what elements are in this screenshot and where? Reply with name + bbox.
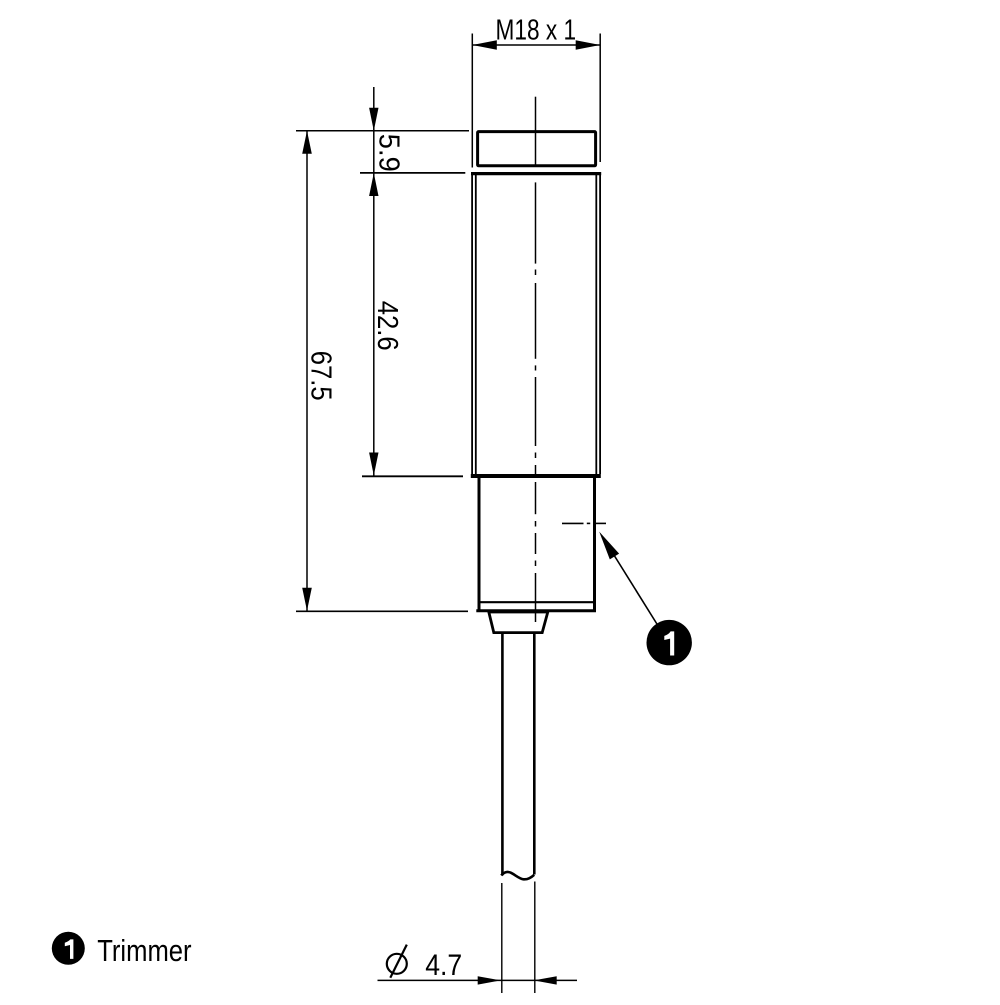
svg-text:4.7: 4.7	[425, 949, 462, 982]
svg-text:5.9: 5.9	[373, 134, 405, 172]
svg-text:M18 x 1: M18 x 1	[496, 14, 577, 46]
svg-text:42.6: 42.6	[371, 301, 403, 351]
svg-text:Trimmer: Trimmer	[97, 934, 191, 968]
svg-text:67.5: 67.5	[305, 351, 337, 401]
